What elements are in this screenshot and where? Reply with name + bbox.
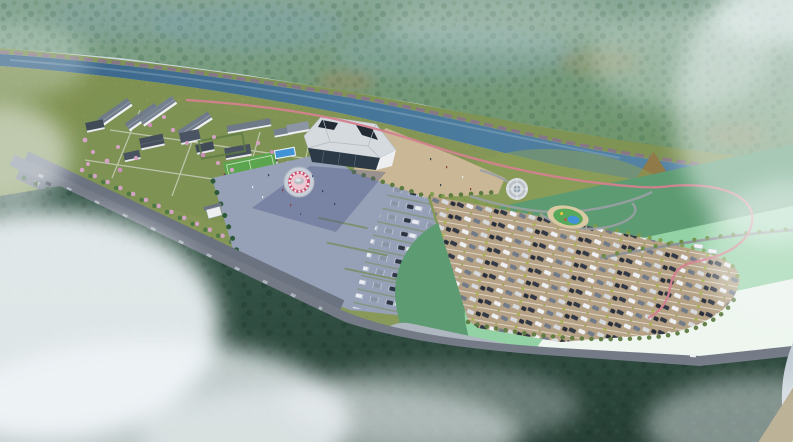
flower-roundel	[284, 167, 314, 197]
pattern-plaza	[506, 178, 528, 200]
scene-canvas	[0, 0, 793, 442]
aerial-rendering	[0, 0, 793, 442]
